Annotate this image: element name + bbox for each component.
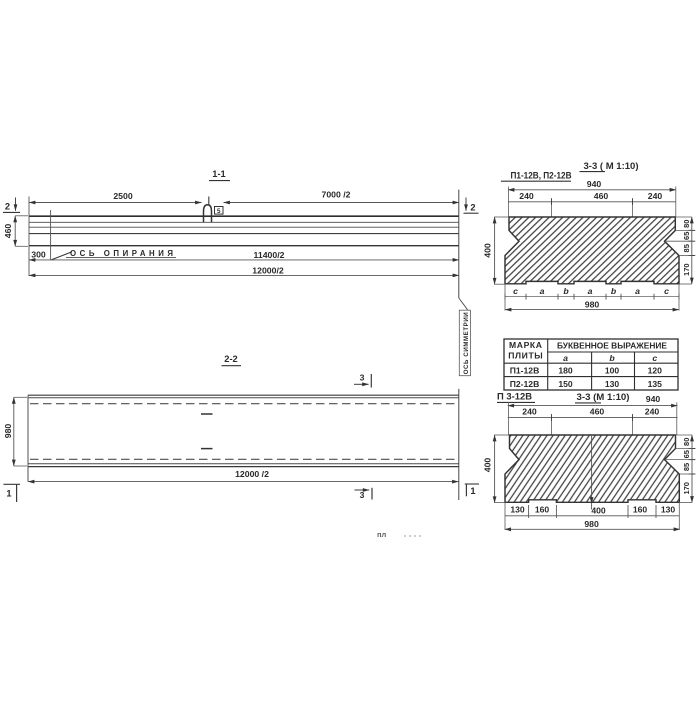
svg-text:240: 240: [645, 407, 660, 417]
svg-text:2500: 2500: [113, 191, 132, 201]
svg-text:5: 5: [217, 208, 221, 215]
svg-text:240: 240: [648, 191, 663, 201]
svg-text:80: 80: [682, 438, 691, 446]
svg-text:П 3-12В: П 3-12В: [497, 392, 532, 402]
svg-text:ОСЬ СИММЕТРИИ: ОСЬ СИММЕТРИИ: [463, 312, 470, 375]
svg-text:170: 170: [682, 482, 691, 495]
svg-text:b: b: [609, 353, 615, 363]
svg-text:400: 400: [482, 458, 492, 473]
svg-text:пл: пл: [377, 530, 387, 539]
svg-text:400: 400: [482, 243, 492, 258]
svg-text:П1-12В, П2-12В: П1-12В, П2-12В: [511, 170, 572, 180]
svg-text:1: 1: [6, 489, 11, 499]
svg-text:130: 130: [510, 505, 525, 515]
svg-text:135: 135: [648, 379, 663, 389]
svg-text:65: 65: [682, 232, 691, 240]
svg-text:160: 160: [535, 505, 550, 515]
svg-text:ПЛИТЫ: ПЛИТЫ: [508, 350, 543, 360]
svg-text:130: 130: [605, 379, 620, 389]
svg-text:400: 400: [591, 505, 606, 515]
svg-text:3: 3: [360, 490, 365, 500]
svg-text:b: b: [563, 286, 569, 296]
svg-text:940: 940: [587, 179, 602, 189]
svg-text:3-3 (М 1:10): 3-3 (М 1:10): [577, 391, 630, 402]
svg-text:240: 240: [522, 407, 537, 417]
svg-text:7000 /2: 7000 /2: [322, 190, 351, 200]
svg-text:a: a: [540, 286, 545, 296]
svg-text:a: a: [588, 286, 593, 296]
svg-text:80: 80: [682, 220, 691, 228]
svg-text:3: 3: [360, 373, 365, 383]
svg-text:12000 /2: 12000 /2: [235, 469, 269, 479]
svg-text:240: 240: [519, 191, 534, 201]
svg-text:2: 2: [5, 202, 10, 212]
svg-text:85: 85: [682, 244, 691, 252]
svg-text:460: 460: [590, 407, 605, 417]
svg-text:П1-12В: П1-12В: [510, 365, 540, 375]
svg-text:120: 120: [648, 365, 663, 375]
svg-text:1: 1: [470, 486, 475, 496]
svg-text:180: 180: [558, 365, 573, 375]
svg-text:c: c: [652, 353, 657, 363]
svg-text:65: 65: [682, 450, 691, 458]
svg-text:2-2: 2-2: [224, 354, 237, 364]
svg-text:БУКВЕННОЕ ВЫРАЖЕНИЕ: БУКВЕННОЕ ВЫРАЖЕНИЕ: [557, 341, 667, 350]
svg-text:a: a: [563, 353, 568, 363]
svg-text:460: 460: [3, 224, 13, 239]
svg-text:300: 300: [31, 249, 46, 259]
svg-text:980: 980: [585, 299, 600, 309]
svg-text:c: c: [513, 286, 518, 296]
svg-text:2: 2: [470, 203, 475, 213]
svg-text:460: 460: [594, 191, 609, 201]
svg-text:b: b: [611, 286, 617, 296]
svg-text:1-1: 1-1: [212, 169, 225, 179]
svg-text:a: a: [635, 286, 640, 296]
svg-text:3-3 ( М 1:10): 3-3 ( М 1:10): [584, 160, 639, 171]
svg-text:100: 100: [605, 365, 620, 375]
svg-text:980: 980: [584, 519, 599, 529]
svg-text:980: 980: [3, 424, 13, 439]
svg-text:940: 940: [646, 394, 661, 404]
svg-text:МАРКА: МАРКА: [509, 340, 543, 350]
svg-text:150: 150: [558, 379, 573, 389]
svg-text:170: 170: [682, 263, 691, 276]
svg-text:85: 85: [682, 463, 691, 471]
svg-text:160: 160: [633, 505, 648, 515]
svg-text:11400/2: 11400/2: [254, 250, 285, 260]
svg-text:130: 130: [661, 505, 676, 515]
svg-text:П2-12В: П2-12В: [510, 379, 540, 389]
svg-text:c: c: [664, 286, 669, 296]
svg-text:12000/2: 12000/2: [252, 266, 284, 276]
